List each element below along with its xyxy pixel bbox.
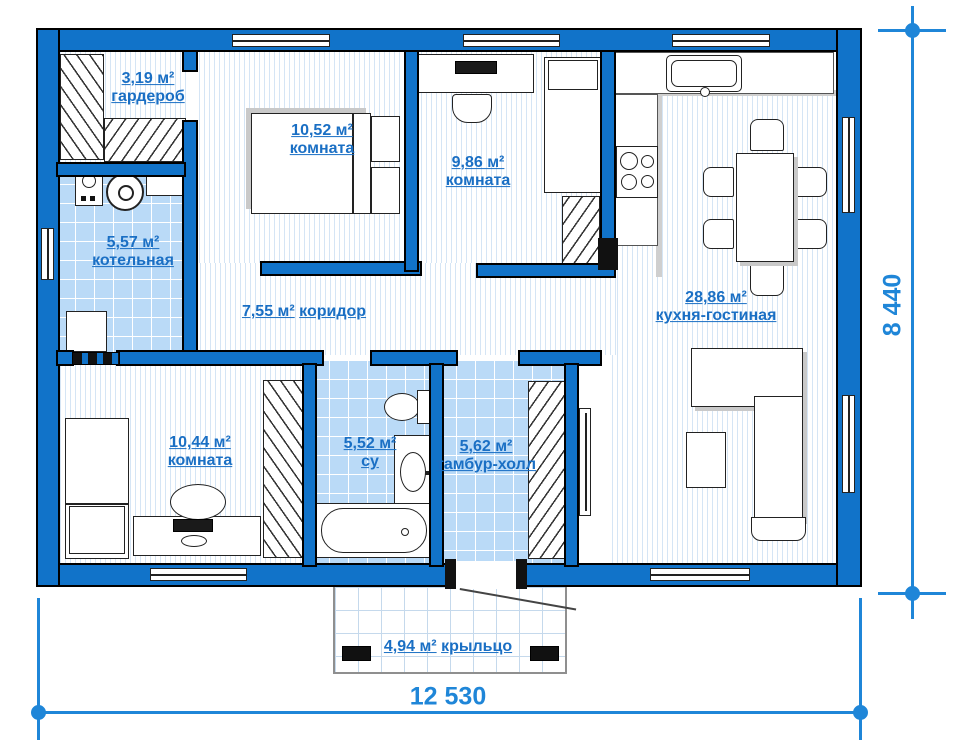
nightstand xyxy=(371,116,400,162)
sliding-door-icon xyxy=(72,352,120,365)
wall-bedroom2-kitchen xyxy=(600,50,616,270)
dimension-height-label: 8 440 xyxy=(879,274,908,337)
monitor-icon xyxy=(455,61,497,74)
boiler-icon xyxy=(106,173,144,211)
sofa-icon xyxy=(754,396,803,520)
burner xyxy=(620,152,638,170)
window xyxy=(463,34,560,47)
room-area: 4,94 м² xyxy=(384,638,437,655)
wardrobe-icon xyxy=(562,196,600,264)
room-area: 10,52 м² xyxy=(291,122,353,139)
pillow xyxy=(548,60,598,90)
porch-step-mark xyxy=(342,646,371,661)
room-label-bedroom-2: 9,86 м² комната xyxy=(446,154,511,190)
wall-bedroom3-bathroom xyxy=(302,363,317,567)
wall-bedroom1-corridor xyxy=(260,261,422,276)
room-name: комната xyxy=(446,172,511,189)
room-name: комната xyxy=(290,140,355,157)
room-label-corridor: 7,55 м² коридор xyxy=(242,303,366,321)
room-name: котельная xyxy=(92,252,174,269)
washbasin-icon xyxy=(394,435,432,507)
window xyxy=(650,568,750,581)
room-name: кухня-гостиная xyxy=(656,307,777,324)
bathtub-icon xyxy=(316,503,432,558)
dimension-width-label: 12 530 xyxy=(410,683,486,712)
room-name: тамбур-холл xyxy=(436,456,536,473)
room-name: комната xyxy=(168,452,233,469)
window xyxy=(672,34,770,47)
room-area: 5,52 м² xyxy=(344,435,397,452)
storage-box xyxy=(66,311,107,352)
room-label-bathroom: 5,52 м² су xyxy=(344,435,397,471)
room-name: су xyxy=(361,453,379,470)
room-area: 7,55 м² xyxy=(242,303,295,320)
bed-edge-line xyxy=(66,503,128,505)
hallstand-mirror-icon xyxy=(579,408,591,516)
pillow xyxy=(69,506,125,554)
entrance-opening xyxy=(455,561,517,589)
room-area: 10,44 м² xyxy=(169,434,231,451)
closet-shelves-icon xyxy=(60,54,104,160)
dining-chair xyxy=(796,219,827,249)
wall-corridor-south xyxy=(518,350,602,366)
room-area: 28,86 м² xyxy=(685,289,747,306)
room-name: коридор xyxy=(299,303,366,320)
kitchen-sink-icon xyxy=(666,55,742,92)
coffee-table-icon xyxy=(686,432,726,488)
boiler-shelf xyxy=(146,176,184,196)
porch-step-mark xyxy=(530,646,559,661)
dining-chair xyxy=(703,167,734,197)
wall-wardrobe-boiler xyxy=(56,162,186,177)
room-area: 9,86 м² xyxy=(452,154,505,171)
room-label-boiler: 5,57 м² котельная xyxy=(92,234,174,270)
monitor-icon xyxy=(173,519,213,532)
dining-chair xyxy=(703,219,734,249)
wall-bedroom1-bedroom2 xyxy=(404,50,419,272)
room-area: 5,57 м² xyxy=(107,234,160,251)
burner xyxy=(641,155,654,168)
desk-chair-icon xyxy=(452,94,492,123)
door-jamb xyxy=(445,559,456,589)
dining-chair xyxy=(796,167,827,197)
room-area: 3,19 м² xyxy=(122,70,175,87)
burner xyxy=(641,175,654,188)
window xyxy=(842,395,855,493)
office-chair-icon xyxy=(170,484,226,520)
room-name: гардероб xyxy=(111,88,184,105)
dimension-marker xyxy=(31,705,46,720)
room-label-wardrobe: 3,19 м² гардероб xyxy=(111,70,184,106)
wall-hall-living xyxy=(564,363,579,567)
dimension-marker xyxy=(905,23,920,38)
room-label-hall: 5,62 м² тамбур-холл xyxy=(436,438,536,474)
wall-bedroom2-corridor xyxy=(476,263,616,278)
wardrobe-icon xyxy=(263,380,305,558)
room-label-bedroom-1: 10,52 м² комната xyxy=(290,122,355,158)
door-jamb xyxy=(516,559,527,589)
wall-left xyxy=(36,28,60,587)
window xyxy=(232,34,330,47)
room-label-bedroom-3: 10,44 м² комната xyxy=(168,434,233,470)
wall-wardrobe-right xyxy=(182,50,198,72)
room-name: крыльцо xyxy=(441,638,512,655)
mouse xyxy=(181,535,207,547)
dining-chair xyxy=(750,119,784,151)
window xyxy=(842,117,855,213)
nightstand xyxy=(371,167,400,214)
burner xyxy=(621,174,637,190)
wall-corridor-south xyxy=(116,350,324,366)
closet-rail-icon xyxy=(104,118,186,162)
floor-plan: 3,19 м² гардероб 5,57 м² котельная 10,52… xyxy=(0,0,974,743)
door-jamb xyxy=(598,238,618,270)
wall-corridor-south xyxy=(370,350,458,366)
dimension-marker xyxy=(905,586,920,601)
dining-table-icon xyxy=(736,153,794,262)
wall-wardrobe-right xyxy=(182,120,198,363)
window xyxy=(150,568,247,581)
dimension-line-right xyxy=(911,30,914,593)
sofa-end xyxy=(751,517,806,541)
window xyxy=(41,228,54,280)
dimension-marker xyxy=(853,705,868,720)
wall-right xyxy=(836,28,862,587)
room-label-kitchen-living: 28,86 м² кухня-гостиная xyxy=(656,289,777,325)
toilet-icon xyxy=(384,393,420,421)
room-area: 5,62 м² xyxy=(460,438,513,455)
room-label-porch: 4,94 м² крыльцо xyxy=(384,638,512,656)
